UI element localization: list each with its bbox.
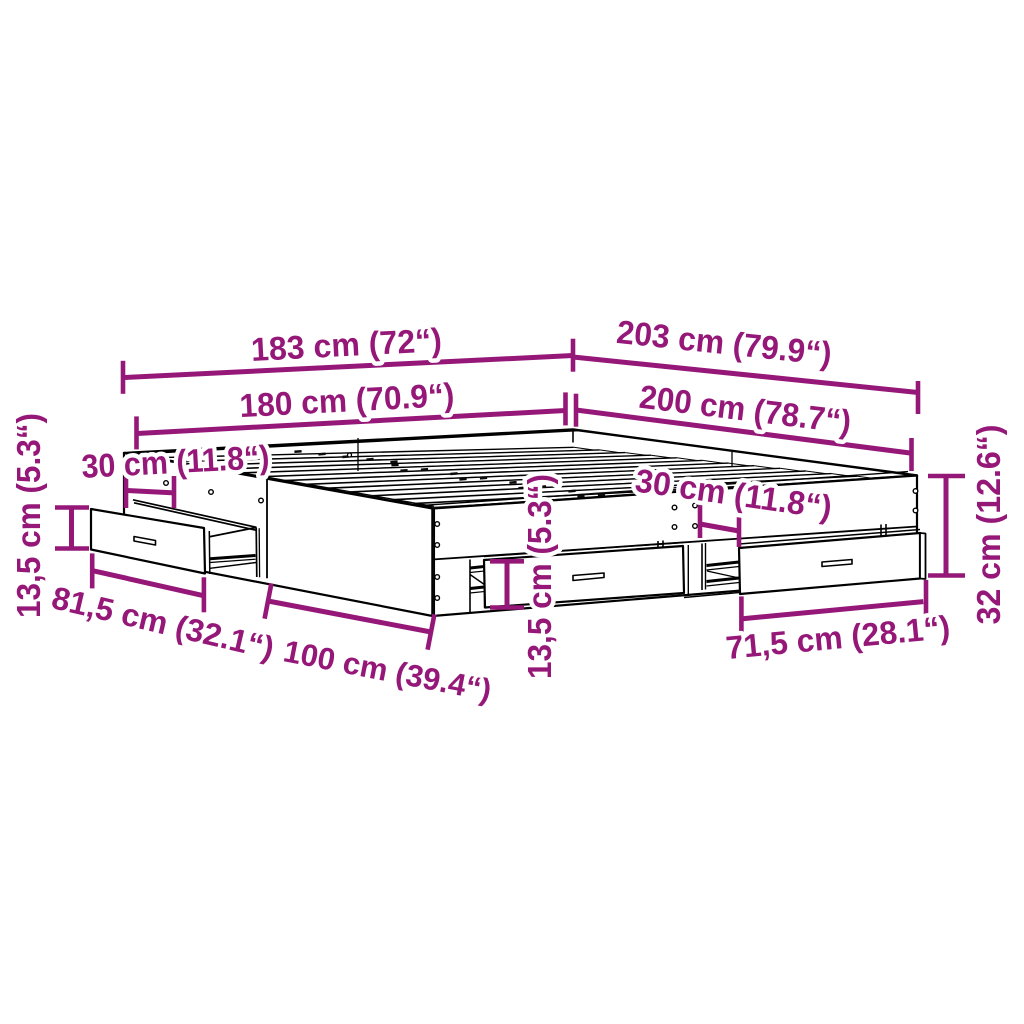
svg-text:13,5 cm (5.3“): 13,5 cm (5.3“) xyxy=(521,474,558,679)
svg-text:32 cm (12.6“): 32 cm (12.6“) xyxy=(970,425,1007,625)
svg-text:13,5 cm (5.3“): 13,5 cm (5.3“) xyxy=(10,413,47,618)
